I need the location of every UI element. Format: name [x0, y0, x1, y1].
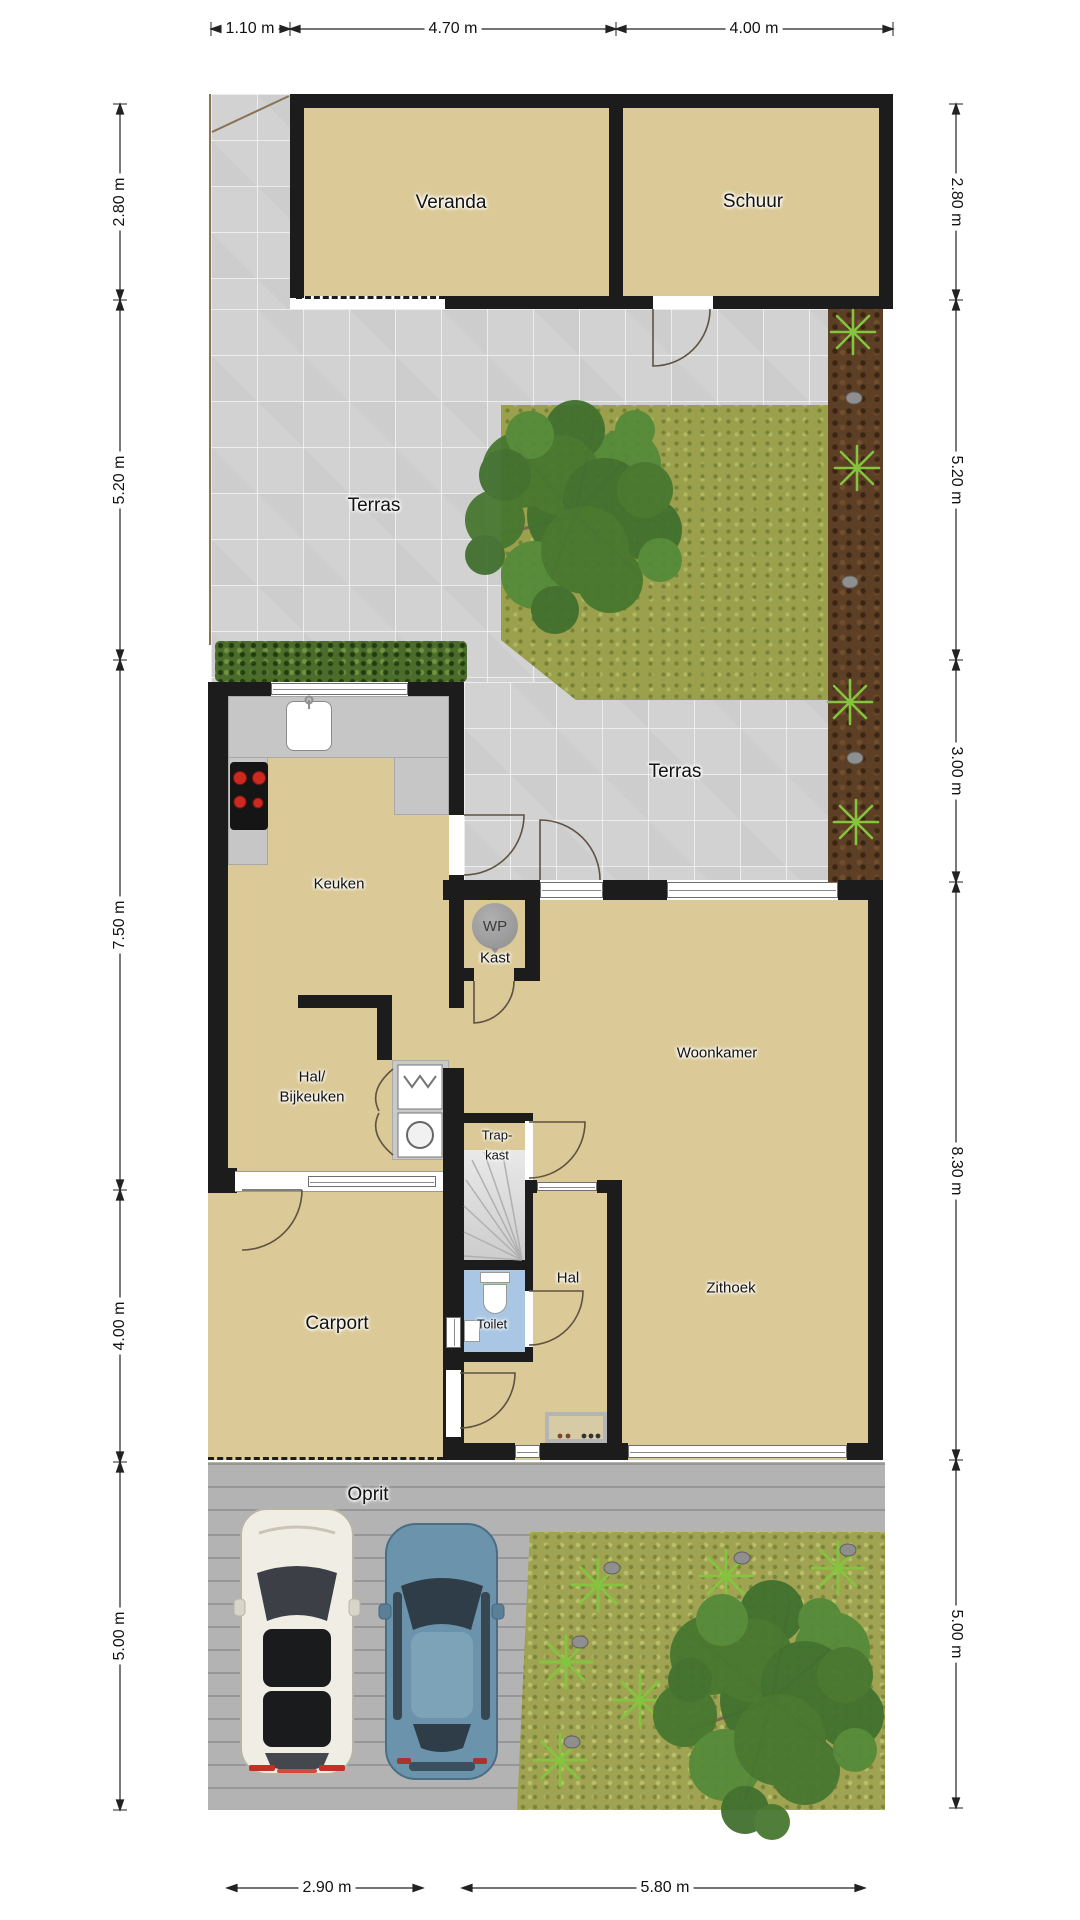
- front-window: [628, 1445, 847, 1458]
- dim-right-4: 8.30 m: [947, 1143, 965, 1200]
- toilet-door-opening: [525, 1291, 533, 1347]
- room-label-hal-bijkeuken-1: Hal/: [299, 1069, 326, 1086]
- wall-living-top-b: [603, 880, 667, 900]
- wall-schuur-right: [879, 94, 893, 309]
- toilet-tank-icon: [480, 1272, 510, 1283]
- room-label-hal: Hal: [557, 1270, 580, 1287]
- planting-bed: [828, 309, 883, 885]
- room-label-terras-lower: Terras: [649, 761, 702, 783]
- wall-schuur-bottom-a: [445, 296, 653, 309]
- terrace-lower: [464, 682, 828, 880]
- toilet-window: [446, 1317, 461, 1348]
- wall-right-outer: [868, 880, 883, 1460]
- wall-corner-left: [208, 1168, 237, 1193]
- dim-right-3: 3.00 m: [947, 743, 965, 800]
- room-label-keuken: Keuken: [314, 876, 365, 893]
- dim-left-4: 4.00 m: [111, 1298, 129, 1355]
- back-garden-grass: [501, 405, 828, 700]
- wall-veranda-schuur-divider: [609, 94, 623, 296]
- doormat: [545, 1412, 607, 1443]
- trapkast-door-opening: [525, 1121, 533, 1180]
- room-label-veranda: Veranda: [416, 192, 487, 214]
- wall-kitchen-right-a: [449, 696, 464, 815]
- dim-left-2: 5.20 m: [111, 452, 129, 509]
- front-sidelight-window: [515, 1445, 540, 1458]
- kitchen-counter-top: [228, 696, 449, 758]
- floorplan-canvas: WP: [0, 0, 1080, 1920]
- room-label-wp-kast: Kast: [480, 950, 510, 967]
- room-label-schuur: Schuur: [723, 191, 783, 213]
- hal-glass-panel: [537, 1182, 597, 1191]
- wall-veranda-left: [290, 94, 304, 298]
- driveway-paving-strip: [208, 1462, 885, 1532]
- utility-window: [308, 1176, 436, 1187]
- wall-wp-bottom-a: [464, 968, 474, 981]
- room-label-oprit: Oprit: [347, 1484, 388, 1506]
- wall-toilet-top: [462, 1260, 533, 1270]
- dim-right-2: 5.20 m: [947, 452, 965, 509]
- kitchen-window: [271, 683, 408, 695]
- wall-trapkast-top: [462, 1113, 533, 1123]
- toilet-bowl-icon: [483, 1284, 507, 1314]
- wall-kitchen-top-b: [408, 682, 464, 696]
- livingroom-rear-window: [667, 882, 838, 898]
- veranda-open-side-dashed: [296, 296, 445, 299]
- dim-right-5: 5.00 m: [947, 1606, 965, 1663]
- dim-right-1: 2.80 m: [947, 174, 965, 231]
- wall-schuur-bottom-b: [713, 296, 893, 309]
- driveway-paving: [208, 1532, 530, 1810]
- room-label-terras-upper: Terras: [348, 495, 401, 517]
- schuur-door-opening: [653, 296, 713, 309]
- dim-left-3: 7.50 m: [111, 897, 129, 954]
- room-label-toilet: Toilet: [477, 1317, 507, 1332]
- dim-bottom-2: 5.80 m: [637, 1879, 694, 1897]
- hedge: [215, 641, 467, 682]
- wall-interior-h: [298, 995, 392, 1008]
- appliance-niche: [392, 1060, 449, 1160]
- wall-left-outer: [208, 682, 228, 1188]
- wall-toilet-bottom: [462, 1352, 533, 1362]
- dim-top-1: 1.10 m: [222, 20, 279, 38]
- wall-hal-right: [607, 1193, 622, 1443]
- carport-open-front-dashed: [208, 1457, 443, 1460]
- wall-front-a: [443, 1443, 515, 1460]
- front-garden-grass: [517, 1532, 885, 1810]
- passage-floor: [449, 1008, 464, 1068]
- wall-front-c: [847, 1443, 883, 1460]
- carport-side-door-opening: [446, 1370, 461, 1437]
- kitchen-sink-icon: [286, 701, 332, 751]
- terrace-glass-door: [540, 882, 603, 898]
- room-label-trapkast-2: kast: [485, 1148, 509, 1163]
- wall-interior-v: [377, 1008, 392, 1060]
- dim-bottom-1: 2.90 m: [299, 1879, 356, 1897]
- cooktop-icon: [230, 762, 268, 830]
- dim-top-2: 4.70 m: [425, 20, 482, 38]
- wall-wp-right: [525, 900, 540, 970]
- room-label-zithoek: Zithoek: [706, 1280, 755, 1297]
- wall-hal-top-b: [597, 1180, 622, 1193]
- dim-left-5: 5.00 m: [111, 1608, 129, 1665]
- wall-front-b: [540, 1443, 628, 1460]
- dim-top-3: 4.00 m: [726, 20, 783, 38]
- wall-wp-bottom-b: [514, 968, 540, 981]
- kitchen-terrace-door-opening: [449, 815, 464, 875]
- dim-left-1: 2.80 m: [111, 174, 129, 231]
- wall-living-top-a: [443, 880, 540, 900]
- room-label-carport: Carport: [305, 1313, 368, 1335]
- wall-hal-top-a: [525, 1180, 537, 1193]
- terrace-strip-left: [211, 94, 290, 309]
- heat-pump-icon: WP: [472, 903, 518, 949]
- room-label-woonkamer: Woonkamer: [677, 1045, 758, 1062]
- wp-label: WP: [483, 918, 507, 935]
- room-label-trapkast-1: Trap-: [482, 1128, 513, 1143]
- wall-top: [290, 94, 893, 108]
- staircase: [462, 1150, 525, 1262]
- room-label-hal-bijkeuken-2: Bijkeuken: [279, 1089, 344, 1106]
- kitchen-counter-right: [394, 757, 449, 815]
